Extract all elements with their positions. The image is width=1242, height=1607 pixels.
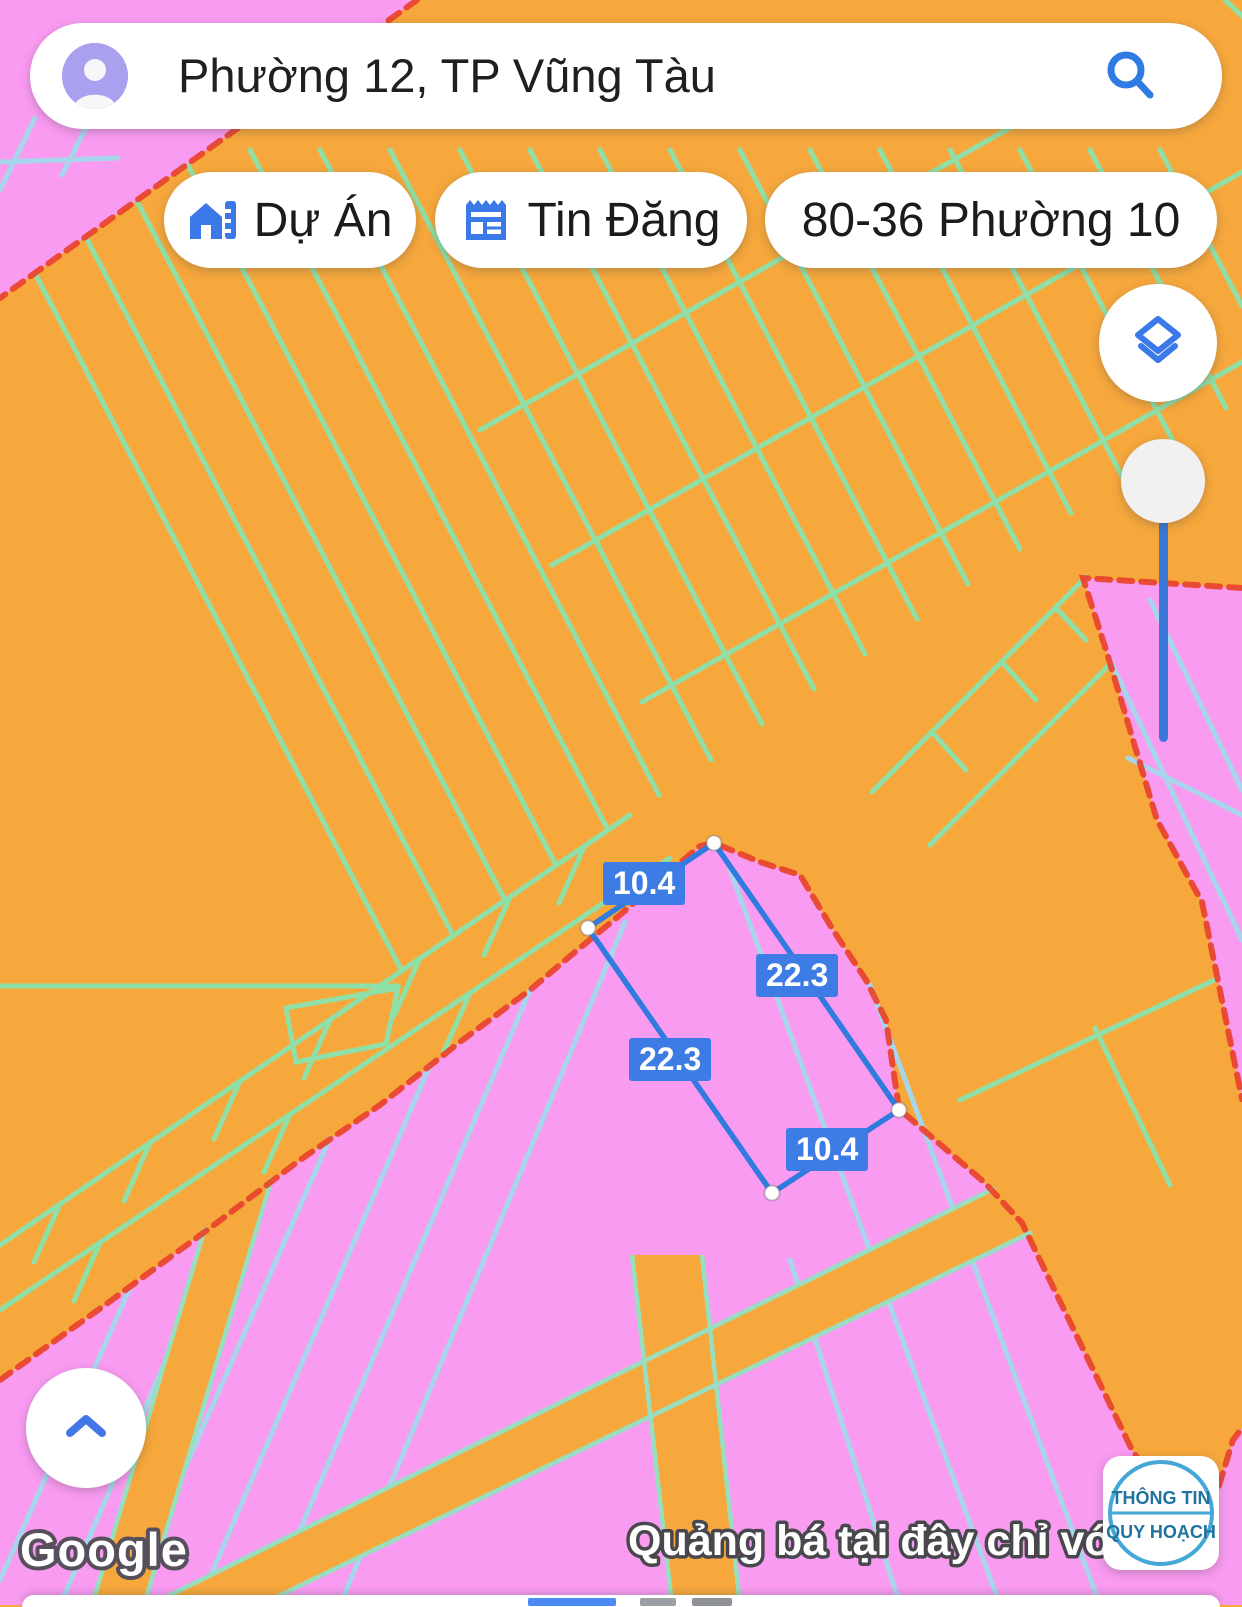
measure-vertex[interactable]: [581, 921, 596, 936]
search-bar[interactable]: Phường 12, TP Vũng Tàu: [30, 23, 1222, 129]
chip-tin-dang-label: Tin Đăng: [528, 193, 721, 248]
google-watermark: Google: [14, 1500, 274, 1590]
measure-vertex[interactable]: [765, 1186, 780, 1201]
avatar-head: [84, 59, 106, 81]
chip-du-an-label: Dự Án: [254, 193, 393, 248]
newspaper-icon: [462, 195, 512, 245]
dimension-label-right: 22.3: [756, 954, 838, 997]
expand-button[interactable]: [26, 1368, 146, 1488]
chip-tin-dang[interactable]: Tin Đăng: [435, 172, 747, 268]
svg-text:Quảng bá tại đây chỉ vớ: Quảng bá tại đây chỉ vớ: [628, 1517, 1115, 1565]
svg-text:Google: Google: [20, 1523, 188, 1576]
bottom-sheet-handle[interactable]: [22, 1595, 1220, 1607]
layers-button[interactable]: [1099, 284, 1217, 402]
ad-text[interactable]: Quảng bá tại đây chỉ vớ: [620, 1495, 1180, 1585]
zoom-slider-thumb[interactable]: [1121, 439, 1205, 523]
dimension-label-bottom: 10.4: [786, 1128, 868, 1171]
badge-line2: QUY HOẠCH: [1106, 1522, 1216, 1542]
chip-address-label: 80-36 Phường 10: [802, 193, 1181, 248]
dimension-label-top: 10.4: [603, 862, 685, 905]
zoom-slider-track[interactable]: [1159, 520, 1168, 742]
chip-du-an[interactable]: Dự Án: [164, 172, 416, 268]
chevron-up-icon: [64, 1411, 108, 1446]
measure-vertex[interactable]: [892, 1103, 907, 1118]
dimension-label-left: 22.3: [629, 1038, 711, 1081]
planning-info-badge[interactable]: THÔNG TIN QUY HOẠCH: [1103, 1456, 1219, 1570]
layers-icon: [1129, 312, 1187, 375]
house-icon: [188, 195, 238, 245]
search-input[interactable]: Phường 12, TP Vũng Tàu: [178, 23, 716, 129]
avatar[interactable]: [62, 43, 128, 109]
measure-vertex[interactable]: [707, 836, 722, 851]
badge-line1: THÔNG TIN: [1112, 1487, 1211, 1508]
chip-address[interactable]: 80-36 Phường 10: [765, 172, 1217, 268]
search-icon[interactable]: [1104, 49, 1158, 103]
